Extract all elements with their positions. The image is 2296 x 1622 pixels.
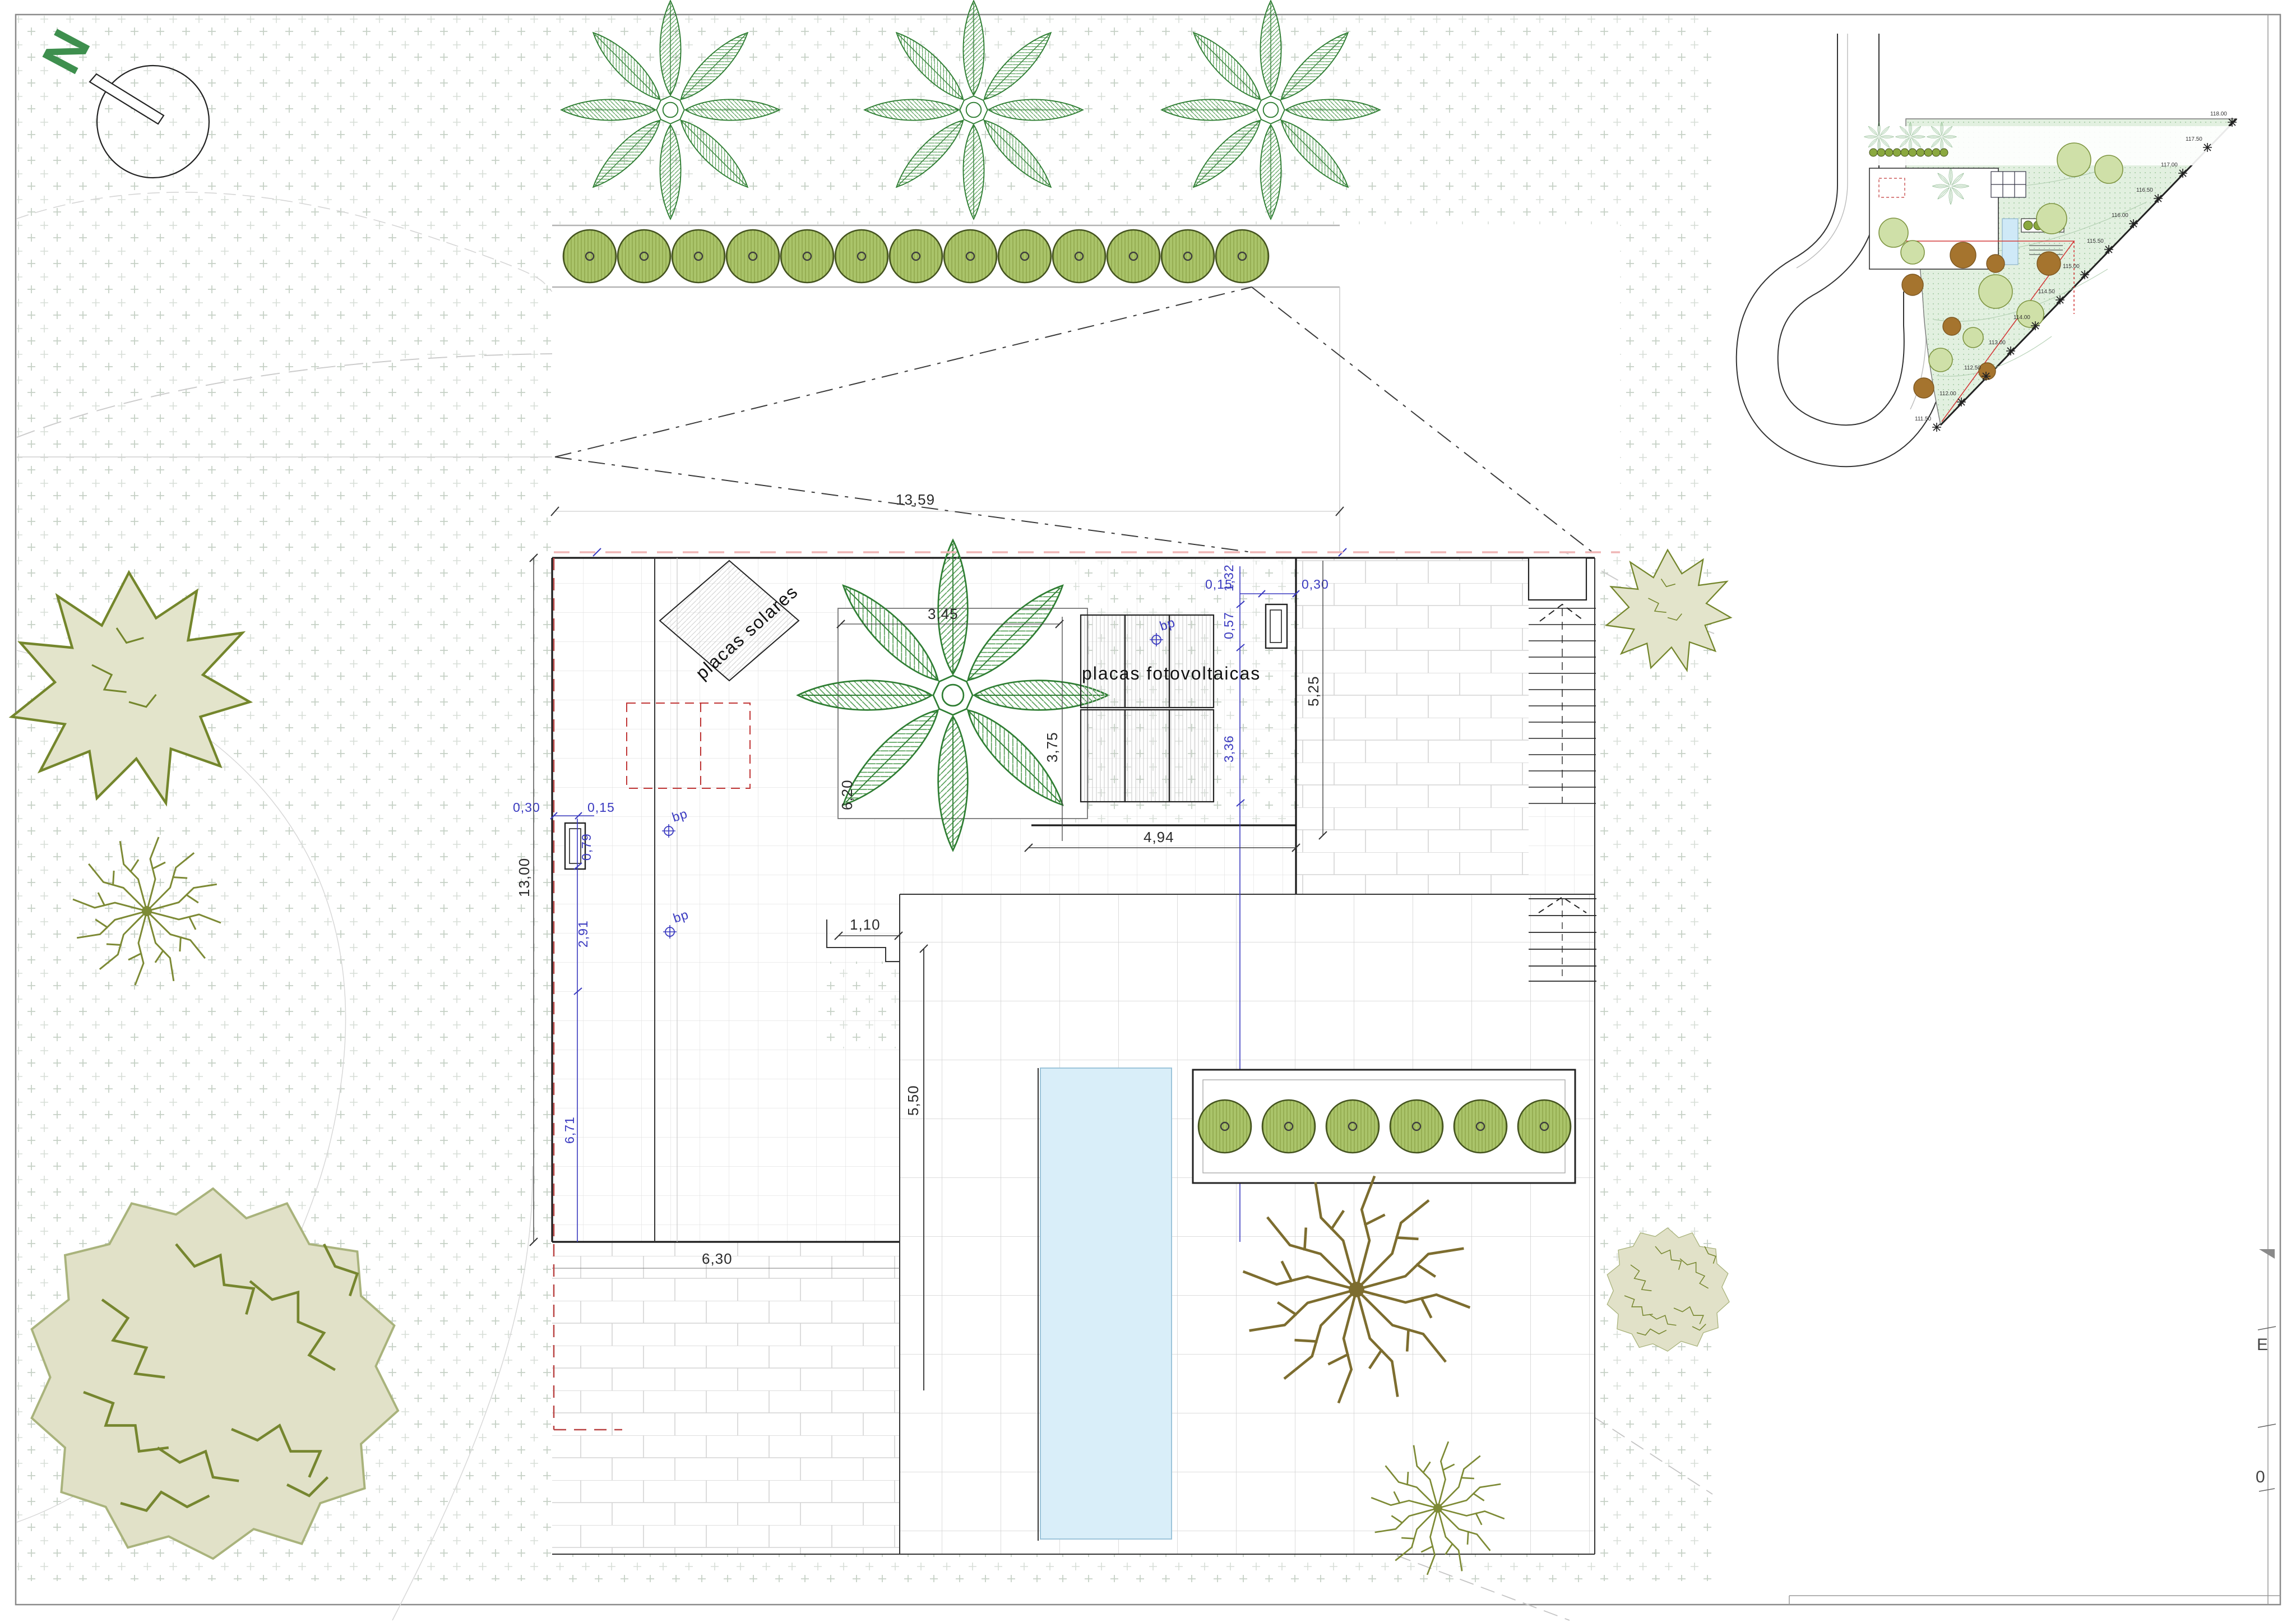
dim-left-offset-b: 0,15 bbox=[587, 800, 615, 815]
elev-label: 115.00 bbox=[2063, 264, 2080, 270]
dim-left-chimney: 0,79 bbox=[579, 833, 594, 861]
elev-label: 115.50 bbox=[2087, 238, 2104, 244]
edge-letter-e: E bbox=[2257, 1336, 2268, 1354]
elev-label: 111.50 bbox=[1915, 416, 1932, 422]
pv-panels-label: placas fotovoltaicas bbox=[1082, 663, 1261, 683]
dim-courtyard-w: 3,45 bbox=[928, 606, 959, 622]
dim-right-offset-a: 0,15 bbox=[1205, 577, 1233, 592]
edge-digit-zero: 0 bbox=[2256, 1468, 2265, 1486]
dim-terrace-w: 4,94 bbox=[1144, 829, 1174, 845]
swimming-pool bbox=[1038, 1068, 1172, 1541]
elev-label: 117.00 bbox=[2161, 162, 2178, 168]
dim-left-seg-a: 2,91 bbox=[576, 920, 590, 948]
sheet-edge-fragments: E 0 bbox=[2256, 1249, 2276, 1491]
dim-courtyard-h: 3,75 bbox=[1044, 732, 1061, 763]
dim-left-total: 13,00 bbox=[516, 858, 533, 897]
dim-right-strip: 5,25 bbox=[1305, 676, 1322, 706]
site-plan-sheet: N 13,59 bbox=[0, 0, 2296, 1622]
elev-label: 118.00 bbox=[2210, 111, 2227, 117]
dim-step-w: 1,10 bbox=[850, 916, 881, 933]
dim-terrace-h: 5,50 bbox=[905, 1085, 922, 1116]
dim-courtyard-side: 6,20 bbox=[839, 779, 855, 810]
elev-label: 116.50 bbox=[2136, 187, 2153, 193]
garage-roof-bricks bbox=[552, 1242, 900, 1554]
pool-planter bbox=[1193, 1070, 1575, 1183]
dim-left-seg-b: 6,71 bbox=[562, 1116, 577, 1144]
lower-terrace-tiles bbox=[900, 894, 1595, 1554]
dim-pv-gap: 0,57 bbox=[1221, 612, 1236, 639]
elev-label: 112.50 bbox=[1964, 365, 1981, 371]
elev-label: 114.50 bbox=[2038, 289, 2055, 295]
dim-site-width-label: 13,59 bbox=[896, 491, 935, 508]
elev-label: 117.50 bbox=[2186, 136, 2202, 142]
dim-garage-w: 6,30 bbox=[702, 1250, 733, 1267]
right-brick-strip bbox=[1297, 558, 1529, 894]
plan-drawing: N 13,59 bbox=[0, 0, 2296, 1622]
dim-right-offset-b: 0,30 bbox=[1302, 577, 1329, 592]
elev-label: 116.00 bbox=[2112, 212, 2128, 219]
dim-pv-height: 3,36 bbox=[1221, 735, 1236, 763]
inset-pool bbox=[2002, 219, 2018, 265]
elev-label: 112.00 bbox=[1939, 391, 1956, 397]
elev-label: 114.00 bbox=[2013, 315, 2030, 321]
elev-label: 113.00 bbox=[1989, 340, 2006, 346]
dim-left-offset-a: 0,30 bbox=[513, 800, 540, 815]
location-inset: 111.50 112.00 112.50 113.00 114.00 114.5… bbox=[1757, 34, 2237, 446]
